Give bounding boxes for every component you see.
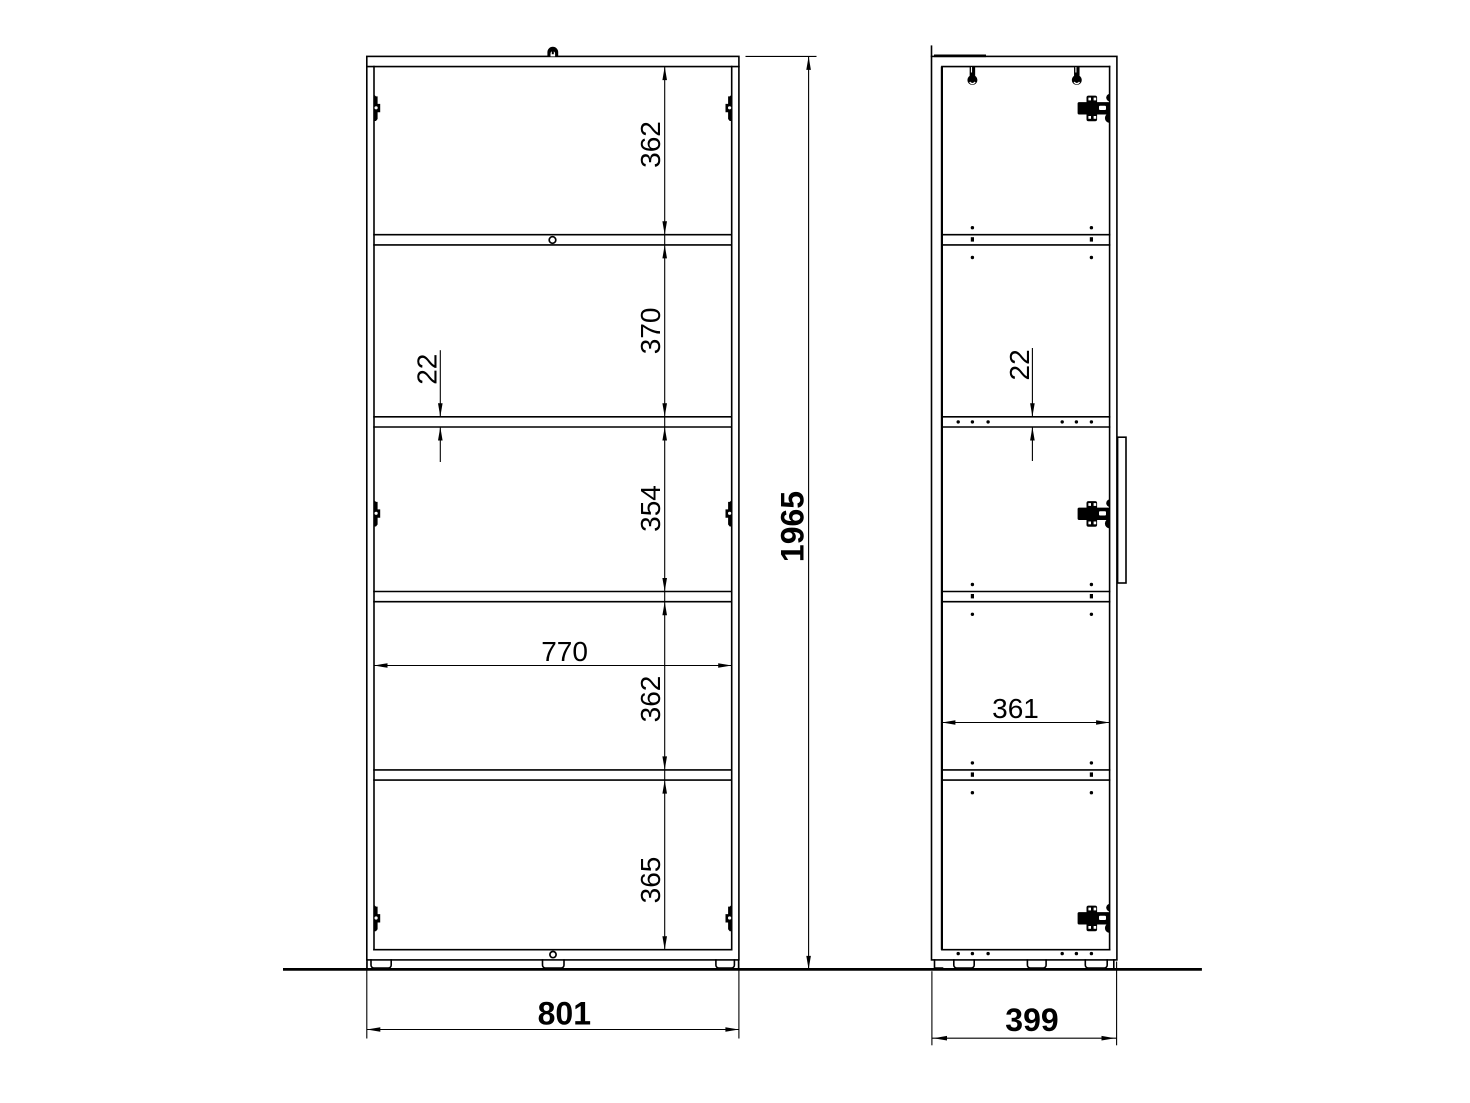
svg-text:362: 362 (635, 676, 666, 723)
svg-text:354: 354 (635, 485, 666, 532)
svg-text:1965: 1965 (774, 491, 810, 562)
svg-text:370: 370 (635, 308, 666, 355)
svg-text:399: 399 (1005, 1002, 1058, 1038)
svg-text:362: 362 (635, 121, 666, 168)
svg-text:801: 801 (538, 996, 591, 1032)
svg-text:22: 22 (1004, 349, 1035, 380)
svg-text:770: 770 (541, 636, 588, 667)
svg-text:365: 365 (635, 857, 666, 904)
svg-text:361: 361 (992, 693, 1039, 724)
svg-text:22: 22 (412, 354, 443, 385)
